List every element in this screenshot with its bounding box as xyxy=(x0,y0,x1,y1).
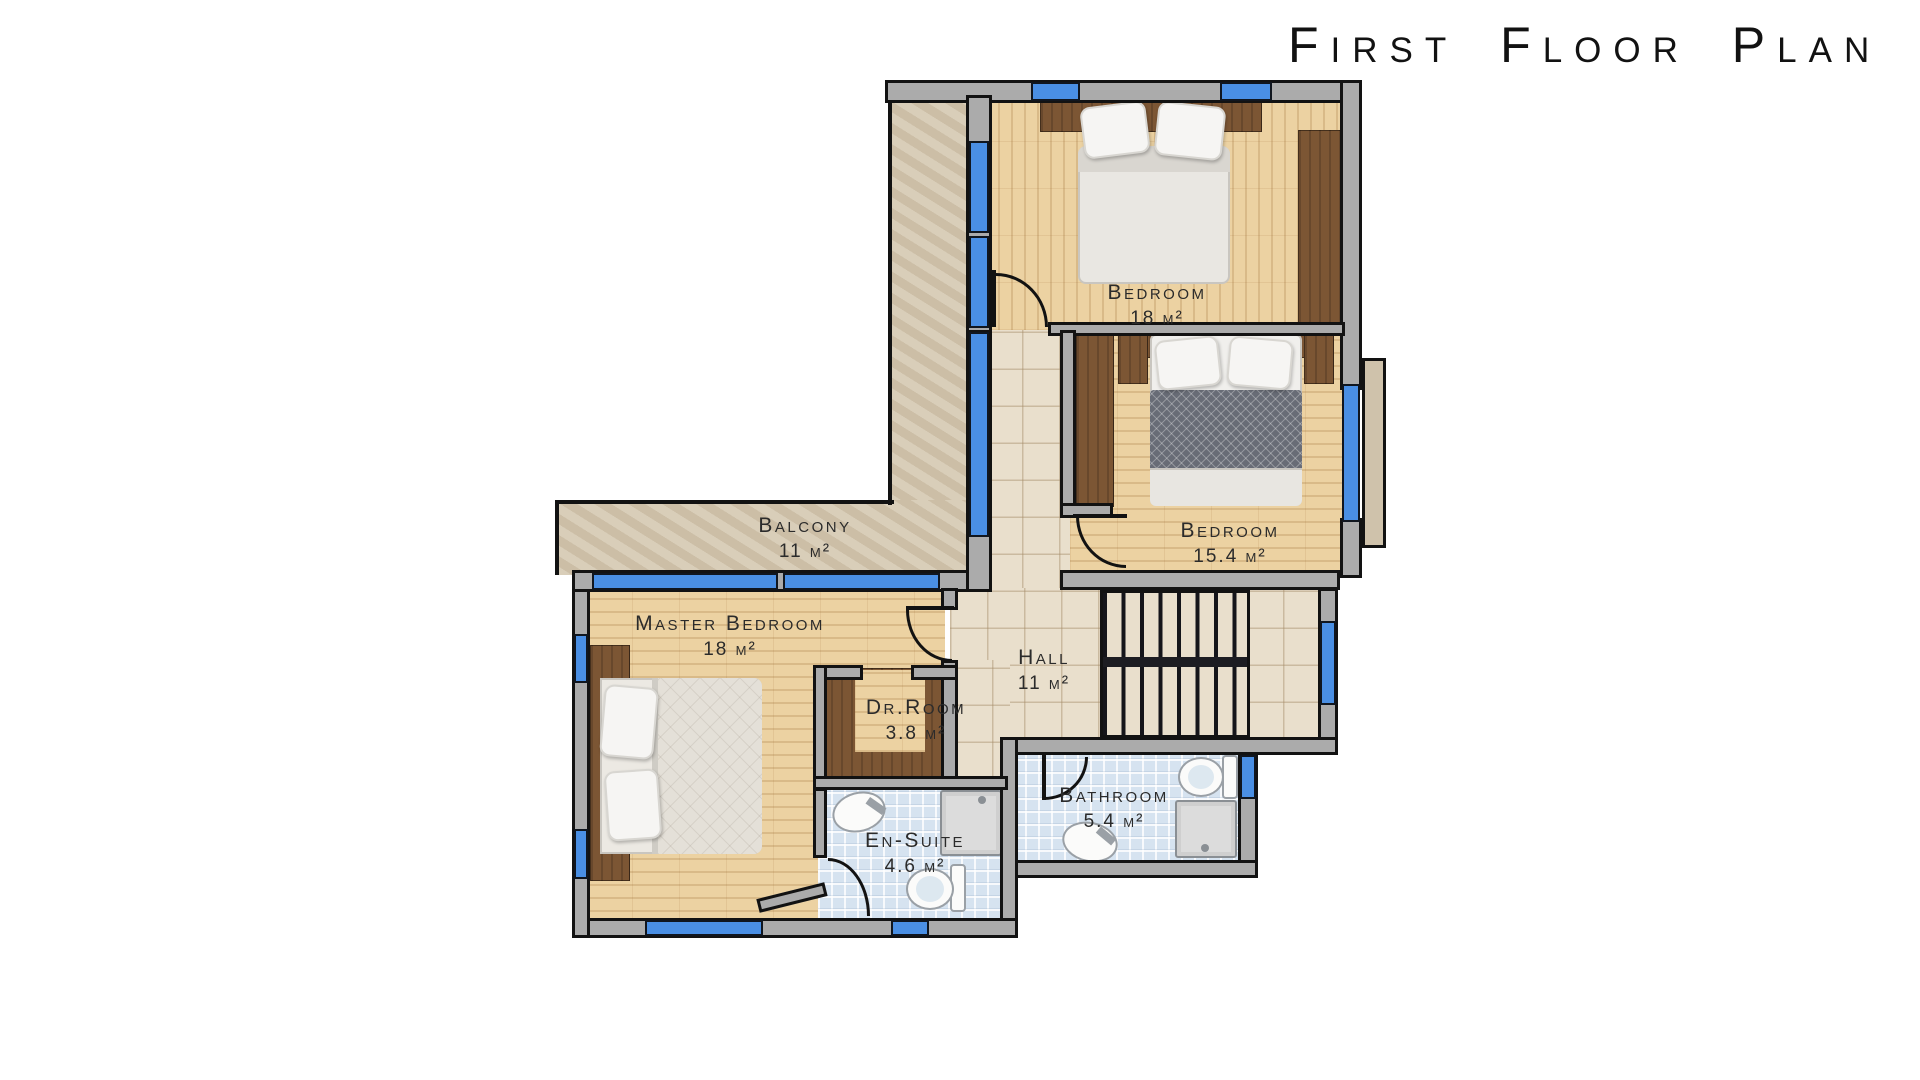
window xyxy=(1240,755,1256,799)
bedroom2-wardrobe xyxy=(1076,334,1114,507)
room-area: 18 m² xyxy=(630,638,830,662)
floor-plan-canvas: First Floor Plan xyxy=(0,0,1920,1080)
room-label-dressing-room: Dr.Room 3.8 m² xyxy=(846,695,986,746)
staircase xyxy=(1100,590,1250,738)
wall xyxy=(1340,518,1362,578)
duvet xyxy=(652,678,762,854)
pillow xyxy=(1153,101,1226,162)
balcony-parapet xyxy=(555,500,559,575)
wall xyxy=(813,788,827,858)
room-label-bedroom2: Bedroom 15.4 m² xyxy=(1160,518,1300,569)
duvet xyxy=(1150,390,1302,472)
room-area: 11 m² xyxy=(984,672,1104,696)
blanket xyxy=(1150,468,1302,506)
balcony-door-window xyxy=(969,332,989,537)
bedroom2-nightstand xyxy=(1304,334,1334,384)
window xyxy=(1220,82,1272,101)
shower-drain xyxy=(978,796,986,804)
room-label-master-bedroom: Master Bedroom 18 m² xyxy=(630,611,830,662)
master-double-bed xyxy=(600,678,762,854)
room-label-bathroom: Bathroom 5.4 m² xyxy=(1044,783,1184,834)
bathroom-toilet-tank xyxy=(1222,755,1238,799)
room-area: 5.4 m² xyxy=(1044,810,1184,834)
wall xyxy=(572,918,1018,938)
corridor-floor xyxy=(985,330,1070,592)
window xyxy=(891,920,929,936)
wall xyxy=(813,776,1008,790)
wall xyxy=(1340,80,1362,390)
window xyxy=(783,573,940,590)
bedroom2-nightstand xyxy=(1118,334,1148,384)
room-label-ensuite: En-Suite 4.6 m² xyxy=(845,828,985,879)
bedroom1-double-bed xyxy=(1078,102,1230,284)
wall xyxy=(813,665,827,788)
room-area: 15.4 m² xyxy=(1160,545,1300,569)
room-name: Bedroom xyxy=(1087,280,1227,306)
balcony-parapet xyxy=(555,500,894,504)
bedroom1-wardrobe xyxy=(1298,130,1344,327)
wall xyxy=(1000,737,1018,938)
room-area: 11 m² xyxy=(725,540,885,564)
wall xyxy=(911,665,958,680)
bay-window-sill xyxy=(1362,358,1386,548)
window xyxy=(592,573,778,590)
room-label-hall: Hall 11 m² xyxy=(984,645,1104,696)
pillow xyxy=(1226,335,1294,390)
page-title: First Floor Plan xyxy=(1288,16,1808,74)
balcony-door-window xyxy=(969,236,989,328)
pillow xyxy=(604,768,663,842)
bathroom-toilet-seat xyxy=(1188,765,1214,789)
stair-rail xyxy=(1103,657,1247,667)
wall xyxy=(1008,860,1258,878)
ensuite-toilet-seat xyxy=(916,876,944,902)
balcony-parapet xyxy=(888,83,892,505)
balcony-door-window xyxy=(969,141,989,233)
window xyxy=(574,829,588,879)
wall xyxy=(1060,330,1076,508)
window xyxy=(1031,82,1080,101)
room-name: Hall xyxy=(984,645,1104,671)
room-name: Bedroom xyxy=(1160,518,1300,544)
room-label-bedroom1: Bedroom 18 m² xyxy=(1087,280,1227,331)
window xyxy=(574,634,588,683)
shower-drain xyxy=(1201,844,1209,852)
pillow xyxy=(599,684,659,760)
bay-window xyxy=(1342,384,1360,522)
wall xyxy=(1008,737,1338,755)
wall xyxy=(572,570,590,938)
wall xyxy=(1060,570,1340,590)
room-name: Bathroom xyxy=(1044,783,1184,809)
room-area: 4.6 m² xyxy=(845,855,985,879)
pillow xyxy=(1154,335,1223,391)
room-name: Balcony xyxy=(725,513,885,539)
room-name: Master Bedroom xyxy=(630,611,830,637)
room-name: Dr.Room xyxy=(846,695,986,721)
window xyxy=(645,920,763,936)
wall xyxy=(885,80,1362,103)
pillow xyxy=(1079,100,1151,160)
room-name: En-Suite xyxy=(845,828,985,854)
window xyxy=(1320,621,1336,705)
room-area: 3.8 m² xyxy=(846,722,986,746)
room-area: 18 m² xyxy=(1087,307,1227,331)
room-label-balcony: Balcony 11 m² xyxy=(725,513,885,564)
balcony-floor-vertical xyxy=(892,83,968,505)
bedroom2-double-bed xyxy=(1150,334,1302,506)
